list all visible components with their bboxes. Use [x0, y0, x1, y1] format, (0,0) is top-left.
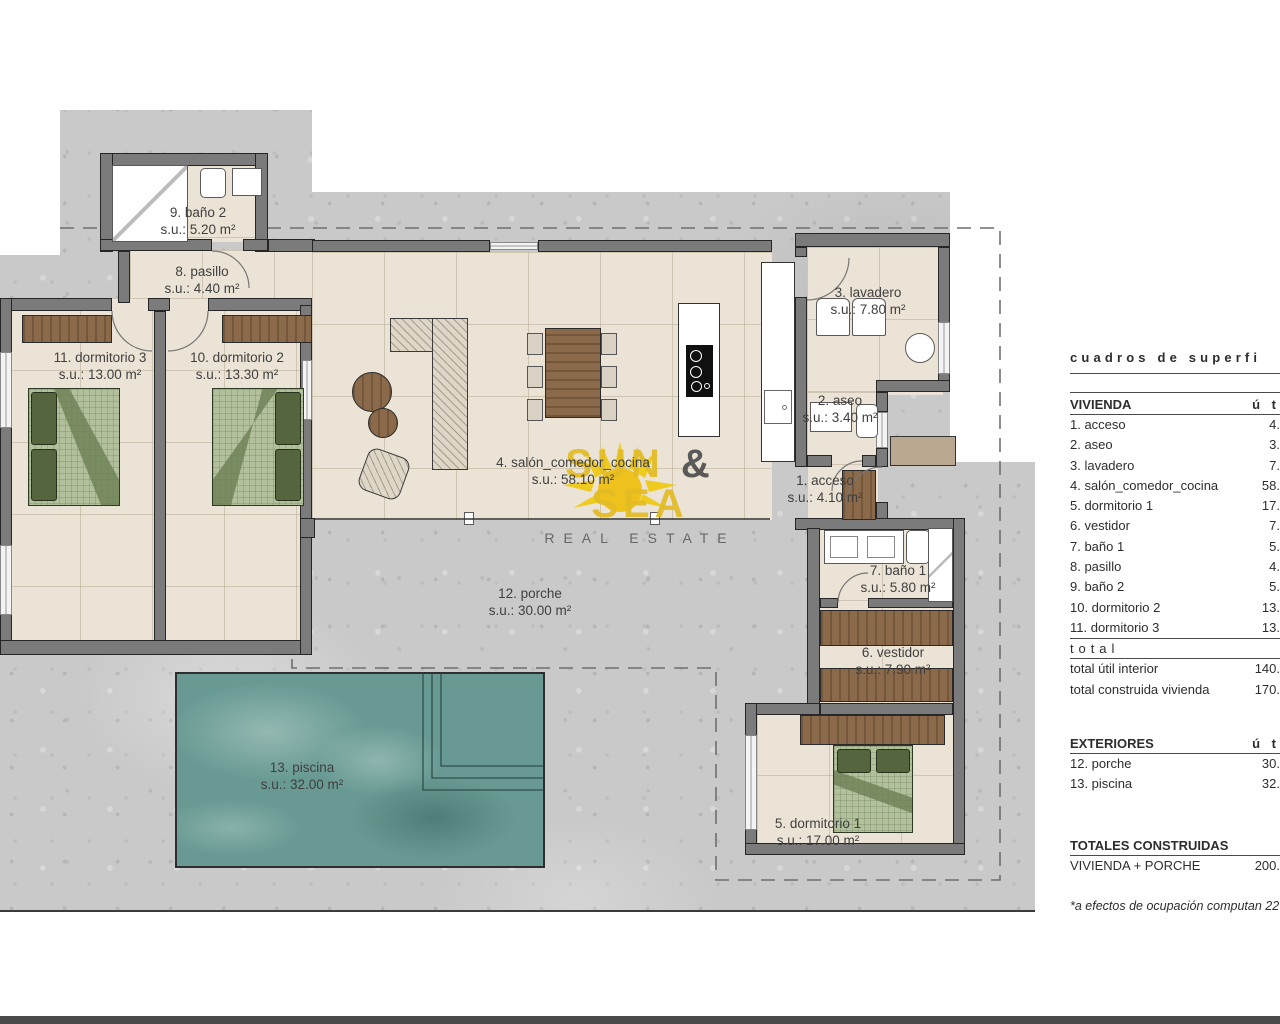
wardrobe-dorm3 [22, 315, 112, 343]
wall-banyo2-bottom-pillar [243, 239, 268, 251]
row-label: 6. vestidor [1070, 516, 1130, 536]
wall-salon-top-b [538, 240, 772, 252]
room-label-banyo1: 7. baño 1 s.u.: 5.80 m² [860, 563, 935, 597]
wall-aseo-right-b [876, 448, 888, 467]
burner-icon [690, 350, 702, 362]
bed-dorm2 [212, 388, 304, 506]
pillow [275, 449, 301, 501]
burner-icon [704, 383, 710, 389]
coffee-table [352, 372, 392, 412]
wall-kitchen-b [795, 297, 807, 467]
pillow [876, 749, 910, 773]
vivienda-header-row: VIVIENDA ú t [1070, 395, 1280, 414]
row-value: 7. [1269, 516, 1280, 536]
room-label-salon: 4. salón_comedor_cocina s.u.: 58.10 m² [496, 455, 650, 489]
room-label-dorm1: 5. dormitorio 1 s.u.: 17.00 m² [775, 816, 861, 850]
room-area: s.u.: 13.00 m² [54, 367, 147, 384]
room-area: s.u.: 7.80 m² [830, 302, 905, 319]
row-value: 4. [1269, 415, 1280, 435]
stepping-stones [890, 436, 956, 466]
row-value: 58. [1262, 476, 1280, 496]
watermark-subtitle: REAL ESTATE [540, 530, 740, 546]
row-label: total construida vivienda [1070, 680, 1209, 700]
room-area: s.u.: 58.10 m² [496, 472, 650, 489]
burner-icon [691, 381, 702, 392]
wall-vestidor-dorm1-divider [820, 703, 953, 715]
toilet-banyo1 [906, 530, 930, 564]
room-name: 9. baño 2 [160, 205, 235, 222]
divider [1070, 373, 1280, 374]
wall-bedrooms-top-b [208, 298, 312, 311]
room-label-acceso: 1. acceso s.u.: 4.10 m² [787, 473, 862, 507]
room-label-lavadero: 3. lavadero s.u.: 7.80 m² [830, 285, 905, 319]
table-row: 13. piscina32. [1070, 774, 1280, 794]
room-label-pasillo: 8. pasillo s.u.: 4.40 m² [164, 264, 239, 298]
dining-chair [601, 399, 617, 421]
room-area: s.u.: 17.00 m² [775, 833, 861, 850]
porch-pillar [464, 512, 474, 525]
room-name: 13. piscina [261, 760, 344, 777]
window-salon-top [490, 242, 538, 250]
room-name: 1. acceso [787, 473, 862, 490]
sink-icon [867, 536, 895, 558]
row-label: VIVIENDA + PORCHE [1070, 856, 1200, 876]
room-name: 3. lavadero [830, 285, 905, 302]
row-label: 12. porche [1070, 754, 1131, 774]
pillow [275, 392, 301, 445]
dining-chair [601, 366, 617, 388]
window-dorm3-b [0, 545, 12, 615]
row-value: 13. [1262, 598, 1280, 618]
coffee-table-small [368, 408, 398, 438]
room-label-aseo: 2. aseo s.u.: 3.40 m² [802, 393, 877, 427]
table-row: 11. dormitorio 313. [1070, 618, 1280, 638]
row-label: 10. dormitorio 2 [1070, 598, 1160, 618]
row-value: 32. [1262, 774, 1280, 794]
row-value: 200. [1255, 856, 1280, 876]
row-value: 5. [1269, 577, 1280, 597]
areas-table: cuadros de superfi VIVIENDA ú t 1. acces… [1070, 350, 1280, 913]
plot-bottom-line [0, 910, 1035, 912]
bottom-bar [0, 1016, 1280, 1024]
table-row: 12. porche30. [1070, 754, 1280, 774]
total-divider-label: total [1070, 639, 1280, 658]
row-value: 4. [1269, 557, 1280, 577]
table-row: 2. aseo3. [1070, 435, 1280, 455]
wall-aseo-acceso-a [807, 455, 832, 467]
unit-column-header: ú t [1252, 395, 1280, 414]
room-name: 8. pasillo [164, 264, 239, 281]
room-area: s.u.: 4.10 m² [787, 490, 862, 507]
slider-door-dorm1 [745, 735, 757, 830]
room-name: 4. salón_comedor_cocina [496, 455, 650, 472]
toilet-banyo2 [200, 168, 226, 198]
room-label-banyo2: 9. baño 2 s.u.: 5.20 m² [160, 205, 235, 239]
vanity-banyo1 [824, 530, 904, 564]
row-value: 140. [1255, 659, 1280, 679]
table-row: 4. salón_comedor_cocina58. [1070, 476, 1280, 496]
dining-chair [527, 399, 543, 421]
wall-pasillo-left [118, 251, 130, 303]
room-area: s.u.: 7.90 m² [855, 662, 930, 679]
row-label: 4. salón_comedor_cocina [1070, 476, 1218, 496]
row-label: 2. aseo [1070, 435, 1113, 455]
table-row: 3. lavadero7. [1070, 456, 1280, 476]
vivienda-rows: 1. acceso4. 2. aseo3. 3. lavadero7. 4. s… [1070, 415, 1280, 638]
wall-bedrooms-bottom [0, 640, 312, 655]
wall-lavadero-top [795, 233, 950, 247]
pool [175, 672, 545, 868]
room-area: s.u.: 5.20 m² [160, 222, 235, 239]
exteriores-header-row: EXTERIORES ú t [1070, 734, 1280, 753]
cooktop [686, 345, 713, 397]
table-row: total construida vivienda170. [1070, 680, 1280, 700]
room-label-dorm3: 11. dormitorio 3 s.u.: 13.00 m² [54, 350, 147, 384]
wall-bedrooms-middle [154, 311, 166, 652]
exteriores-header: EXTERIORES [1070, 734, 1154, 753]
room-name: 10. dormitorio 2 [190, 350, 284, 367]
table-row: 5. dormitorio 117. [1070, 496, 1280, 516]
table-row: total útil interior140. [1070, 659, 1280, 679]
table-row: 7. baño 15. [1070, 537, 1280, 557]
wall-banyo1-divider-a [820, 598, 838, 608]
sink-banyo2 [232, 168, 262, 196]
table-row: VIVIENDA + PORCHE200. [1070, 856, 1280, 876]
pillow [31, 392, 57, 445]
row-label: 1. acceso [1070, 415, 1126, 435]
room-name: 7. baño 1 [860, 563, 935, 580]
wall-lavadero-bottom-right [876, 380, 950, 392]
row-label: 9. baño 2 [1070, 577, 1124, 597]
table-row: 10. dormitorio 213. [1070, 598, 1280, 618]
burner-icon [690, 366, 702, 378]
divider [1070, 392, 1280, 393]
unit-column-header: ú t [1252, 734, 1280, 753]
pillow [837, 749, 871, 773]
pillow [31, 449, 57, 501]
bed-dorm3 [28, 388, 120, 506]
row-value: 170. [1255, 680, 1280, 700]
room-area: s.u.: 3.40 m² [802, 410, 877, 427]
row-value: 13. [1262, 618, 1280, 638]
room-area: s.u.: 5.80 m² [860, 580, 935, 597]
table-row: 1. acceso4. [1070, 415, 1280, 435]
row-value: 30. [1262, 754, 1280, 774]
totales-header: TOTALES CONSTRUIDAS [1070, 836, 1228, 855]
room-area: s.u.: 30.00 m² [489, 603, 572, 620]
kitchen-counter [761, 262, 795, 462]
totales-header-row: TOTALES CONSTRUIDAS [1070, 836, 1280, 855]
footnote: *a efectos de ocupación computan 227. [1070, 899, 1280, 913]
wall-porch-corner-stub [300, 518, 315, 538]
drain-icon [782, 405, 787, 410]
row-value: 17. [1262, 496, 1280, 516]
row-label: 3. lavadero [1070, 456, 1134, 476]
wall-block-right-outer [953, 518, 965, 855]
floorplan-page: SUN & SEA REAL ESTATE 1. acceso s.u.: 4.… [0, 0, 1280, 1024]
wall-aseo-acceso-b [862, 455, 876, 467]
room-label-piscina: 13. piscina s.u.: 32.00 m² [261, 760, 344, 794]
areas-table-title: cuadros de superfi [1070, 350, 1280, 365]
room-label-dorm2: 10. dormitorio 2 s.u.: 13.30 m² [190, 350, 284, 384]
room-area: s.u.: 4.40 m² [164, 281, 239, 298]
row-value: 7. [1269, 456, 1280, 476]
table-row: 9. baño 25. [1070, 577, 1280, 597]
dining-chair [601, 333, 617, 355]
window-dorm3-a [0, 352, 12, 428]
watermark-ampersand: & [681, 442, 715, 486]
sink-icon [830, 536, 858, 558]
row-label: 5. dormitorio 1 [1070, 496, 1153, 516]
wardrobe-vestidor [820, 610, 953, 646]
wall-salon-top-a [312, 240, 490, 252]
row-label: 11. dormitorio 3 [1070, 618, 1159, 638]
room-label-porche: 12. porche s.u.: 30.00 m² [489, 586, 572, 620]
row-label: 7. baño 1 [1070, 537, 1124, 557]
kitchen-sink [764, 390, 792, 424]
room-name: 6. vestidor [855, 645, 930, 662]
room-name: 12. porche [489, 586, 572, 603]
wall-bedrooms-top-a [8, 298, 112, 311]
table-row: 8. pasillo4. [1070, 557, 1280, 577]
headboard-dorm1 [800, 715, 945, 745]
dining-chair [527, 333, 543, 355]
table-row: 6. vestidor7. [1070, 516, 1280, 536]
row-label: 8. pasillo [1070, 557, 1121, 577]
row-label: 13. piscina [1070, 774, 1132, 794]
dining-chair [527, 366, 543, 388]
row-label: total útil interior [1070, 659, 1158, 679]
dining-table [545, 328, 601, 418]
room-name: 5. dormitorio 1 [775, 816, 861, 833]
wall-kitchen-a [795, 247, 807, 257]
row-value: 5. [1269, 537, 1280, 557]
window-lavadero [938, 322, 950, 374]
wardrobe-dorm2 [222, 315, 312, 343]
wall-banyo1-vestidor-left [807, 528, 820, 715]
wall-bedrooms-top-pillar [148, 298, 170, 311]
room-name: 11. dormitorio 3 [54, 350, 147, 367]
room-area: s.u.: 32.00 m² [261, 777, 344, 794]
laundry-basin [905, 333, 935, 363]
vivienda-header: VIVIENDA [1070, 395, 1131, 414]
room-label-vestidor: 6. vestidor s.u.: 7.90 m² [855, 645, 930, 679]
row-value: 3. [1269, 435, 1280, 455]
wall-pasillo-top-right [268, 239, 315, 252]
room-name: 2. aseo [802, 393, 877, 410]
sofa-chaise [432, 318, 468, 470]
room-area: s.u.: 13.30 m² [190, 367, 284, 384]
